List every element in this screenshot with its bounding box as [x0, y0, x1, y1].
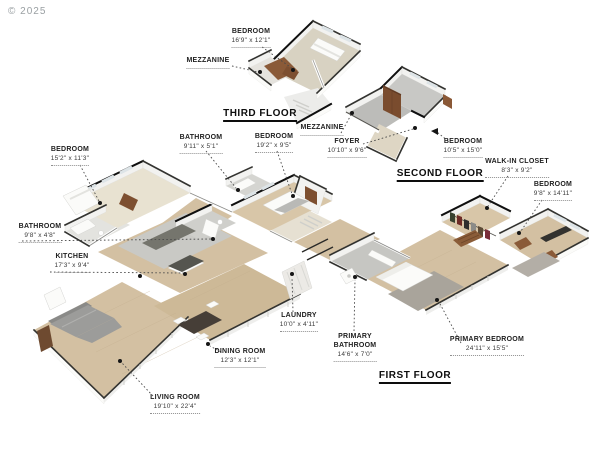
- third-floor-title: THIRD FLOOR: [223, 108, 297, 122]
- floor-plan-render: [0, 0, 600, 450]
- living-cabinet: [44, 287, 66, 310]
- label-primary-bathroom: PRIMARY BATHROOM 14'6" x 7'0": [334, 333, 377, 362]
- label-bedroom-19: BEDROOM 19'2" x 9'5": [255, 133, 293, 153]
- label-bathroom-left: BATHROOM 9'8" x 4'8": [19, 223, 62, 243]
- label-bedroom-second: BEDROOM 10'5" x 15'0": [444, 138, 483, 158]
- label-bathroom-hall: BATHROOM 9'11" x 5'1": [180, 134, 223, 154]
- first-floor-plan: [34, 161, 588, 404]
- floorplan-image: © 2025 THIRD FLOOR SECOND FLOOR FIRST FL…: [0, 0, 600, 450]
- label-bedroom-left: BEDROOM 15'2" x 11'3": [51, 146, 89, 166]
- first-floor-title: FIRST FLOOR: [379, 370, 451, 384]
- label-bedroom-third: BEDROOM 16'9" x 12'1": [232, 28, 271, 48]
- label-dining-room: DINING ROOM 12'3" x 12'1": [215, 348, 266, 368]
- label-primary-bedroom: PRIMARY BEDROOM 24'11" x 15'5": [450, 336, 524, 356]
- label-foyer: FOYER 10'10" x 9'6": [328, 138, 367, 158]
- label-walk-in-closet: WALK-IN CLOSET 8'3" x 9'2": [485, 158, 549, 178]
- label-kitchen: KITCHEN 17'3" x 9'4": [54, 253, 89, 273]
- second-floor-door: [443, 94, 452, 109]
- label-mezzanine-second: MEZZANINE: [300, 124, 343, 136]
- second-floor-title: SECOND FLOOR: [397, 168, 484, 182]
- label-living-room: LIVING ROOM 19'10" x 22'4": [150, 394, 200, 414]
- copyright-watermark: © 2025: [8, 6, 46, 17]
- label-mezzanine-third: MEZZANINE: [186, 57, 229, 69]
- label-bedroom-right: BEDROOM 9'8" x 14'11": [534, 181, 572, 201]
- label-laundry: LAUNDRY 10'0" x 4'11": [280, 312, 318, 332]
